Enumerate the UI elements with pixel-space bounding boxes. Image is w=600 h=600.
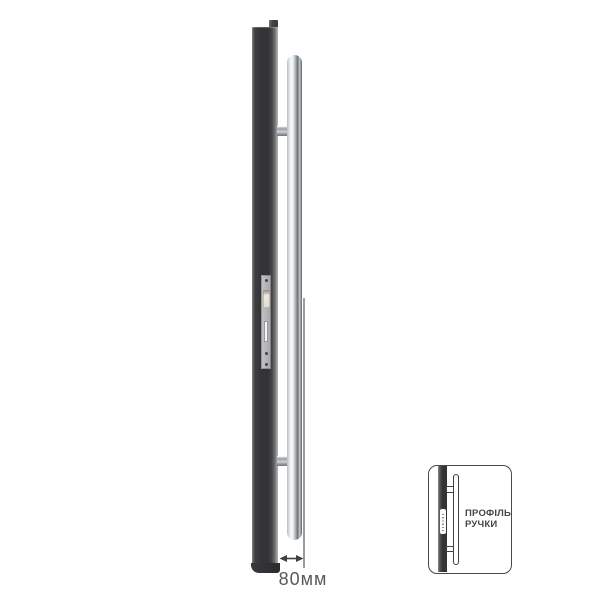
inset-lock-plate [440, 509, 446, 534]
strike-plate-screw-middle [265, 352, 268, 355]
inset-handle-profile-outline [453, 474, 459, 565]
pull-handle-bar [287, 55, 302, 540]
deadbolt-opening [264, 321, 268, 342]
dimension-extension-line [303, 298, 305, 568]
inset-title-line2: РУЧКИ [465, 519, 511, 530]
inset-lock-plate-marks [442, 512, 444, 531]
handle-profile-inset-panel: ПРОФІЛЬ РУЧКИ [428, 465, 512, 574]
latch-opening [263, 290, 270, 308]
inset-title: ПРОФІЛЬ РУЧКИ [465, 508, 511, 530]
dimension-label: 80мм [276, 569, 330, 590]
lock-strike-plate [261, 275, 271, 369]
inset-title-line1: ПРОФІЛЬ [465, 508, 511, 519]
product-figure: 80мм ПРОФІЛЬ РУЧКИ [0, 0, 600, 600]
strike-plate-screw-bottom [265, 363, 268, 366]
strike-plate-screw-top [265, 279, 268, 282]
dimension-arrow-icon [279, 553, 304, 564]
